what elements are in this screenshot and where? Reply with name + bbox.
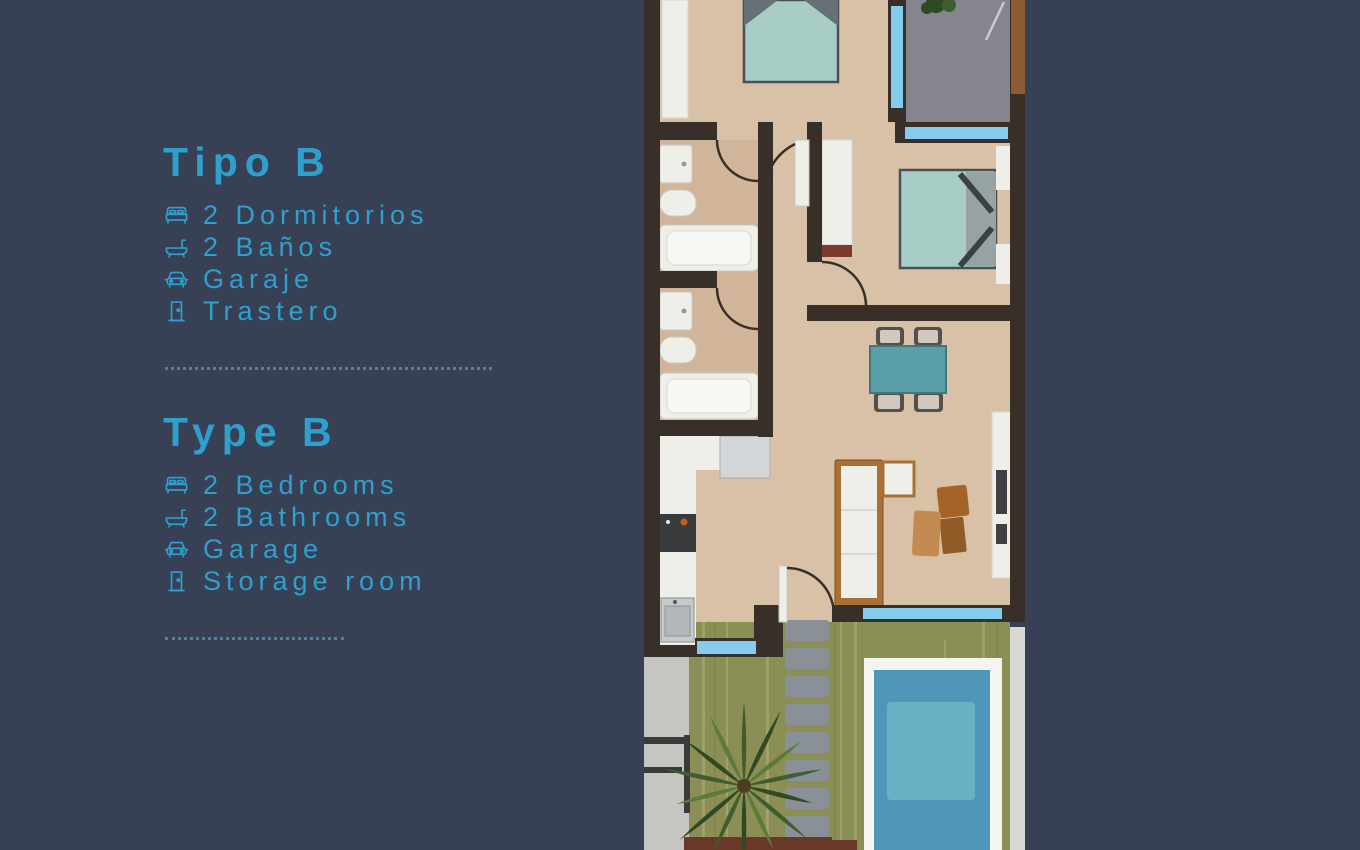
bed-icon <box>163 472 190 499</box>
swimming-pool <box>864 658 1002 850</box>
feature-list-en: 2 Bedrooms 2 Bathrooms <box>163 469 427 597</box>
heading-type-b: Type B <box>163 410 427 455</box>
feature-label: Garaje <box>203 264 314 295</box>
kitchen-sink <box>661 598 694 642</box>
storage-door-icon <box>163 568 190 595</box>
list-item: Storage room <box>163 565 427 597</box>
section-type-b: Type B 2 Bedrooms <box>163 410 427 640</box>
feature-label: 2 Bathrooms <box>203 502 411 533</box>
side-path <box>644 657 689 850</box>
page: Tipo B 2 Dormitorios <box>0 0 1360 850</box>
list-item: Garage <box>163 533 427 565</box>
bed-icon <box>163 202 190 229</box>
section-tipo-b: Tipo B 2 Dormitorios <box>163 140 492 370</box>
list-item: Garaje <box>163 263 492 295</box>
list-item: 2 Dormitorios <box>163 199 492 231</box>
door-leaf-entrance <box>779 566 787 622</box>
storage-door-icon <box>163 298 190 325</box>
terrace <box>906 0 1010 122</box>
sink <box>660 292 692 330</box>
stove <box>659 514 696 552</box>
feature-list-es: 2 Dormitorios 2 Baños <box>163 199 492 327</box>
bathtub-icon <box>163 504 190 531</box>
feature-label: 2 Baños <box>203 232 337 263</box>
floorplan-image <box>644 0 1025 850</box>
double-bed-1 <box>744 0 838 82</box>
double-bed-2 <box>900 170 996 268</box>
car-icon <box>163 536 190 563</box>
fridge <box>720 436 770 478</box>
feature-label: Storage room <box>203 566 427 597</box>
dotted-divider <box>165 637 344 640</box>
bathtub <box>660 225 758 271</box>
nightstand <box>996 146 1010 190</box>
sink <box>660 145 692 183</box>
car-icon <box>163 266 190 293</box>
heading-tipo-b: Tipo B <box>163 140 492 185</box>
terrace-door <box>1011 0 1025 94</box>
list-item: 2 Baños <box>163 231 492 263</box>
door-leaf-bedroom-1 <box>795 140 809 206</box>
list-item: 2 Bedrooms <box>163 469 427 501</box>
toilet <box>660 190 696 216</box>
list-item: 2 Bathrooms <box>163 501 427 533</box>
media-unit <box>992 412 1012 578</box>
list-item: Trastero <box>163 295 492 327</box>
wardrobe <box>662 0 688 118</box>
nightstand <box>996 244 1010 284</box>
feature-label: Garage <box>203 534 323 565</box>
feature-label: 2 Bedrooms <box>203 470 399 501</box>
bathtub-icon <box>163 234 190 261</box>
feature-label: 2 Dormitorios <box>203 200 429 231</box>
toilet <box>660 337 696 363</box>
feature-label: Trastero <box>203 296 343 327</box>
dotted-divider <box>165 367 492 370</box>
right-walkway <box>1010 627 1025 850</box>
bathtub <box>660 373 758 419</box>
wardrobe <box>822 140 852 245</box>
